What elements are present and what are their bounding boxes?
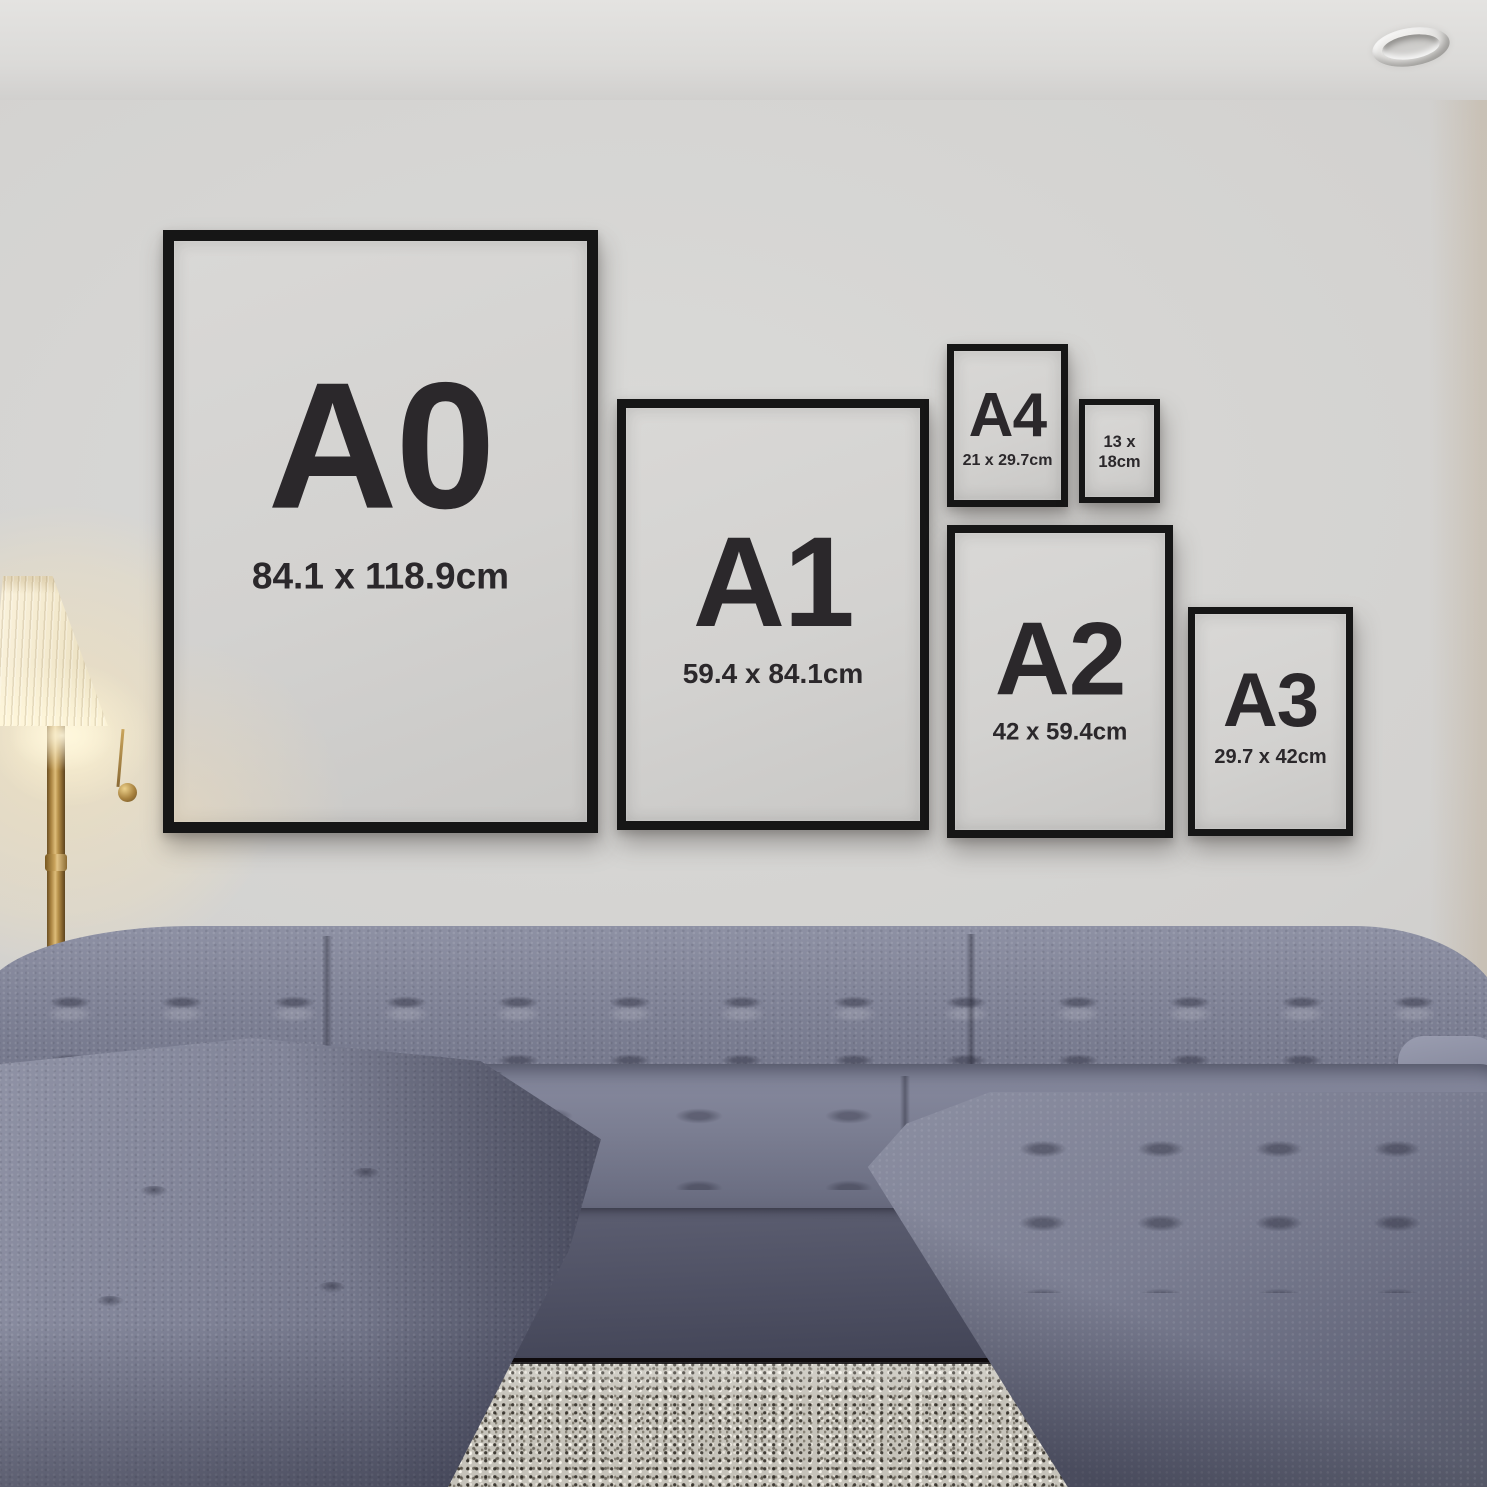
- size-dimensions-13x18: 13 x 18cm: [1085, 432, 1154, 472]
- frame-a4: A4 21 x 29.7cm: [947, 344, 1068, 507]
- living-room-scene: A0 84.1 x 118.9cm A1 59.4 x 84.1cm A4 21…: [0, 0, 1487, 1487]
- frame-13x18: 13 x 18cm: [1079, 399, 1160, 503]
- size-block-a1: A1 59.4 x 84.1cm: [626, 522, 920, 690]
- frame-a1: A1 59.4 x 84.1cm: [617, 399, 929, 830]
- size-dimensions-a1: 59.4 x 84.1cm: [626, 658, 920, 690]
- frame-a2: A2 42 x 59.4cm: [947, 525, 1173, 838]
- size-block-a2: A2 42 x 59.4cm: [955, 610, 1165, 747]
- size-block-13x18: 13 x 18cm: [1085, 432, 1154, 472]
- size-label-a2: A2: [955, 610, 1165, 710]
- size-block-a0: A0 84.1 x 118.9cm: [174, 361, 587, 598]
- size-dimensions-a4: 21 x 29.7cm: [954, 452, 1061, 470]
- size-dimensions-13x18-line1: 13 x: [1085, 432, 1154, 452]
- poster-13x18: 13 x 18cm: [1085, 405, 1154, 497]
- size-label-a4: A4: [954, 387, 1061, 447]
- poster-a4: A4 21 x 29.7cm: [954, 351, 1061, 500]
- recessed-ceiling-light: [1370, 22, 1453, 72]
- size-dimensions-a3: 29.7 x 42cm: [1195, 746, 1346, 769]
- tuft-dimple: [96, 1296, 124, 1307]
- poster-a0: A0 84.1 x 118.9cm: [174, 241, 587, 822]
- size-dimensions-13x18-line2: 18cm: [1085, 452, 1154, 472]
- ceiling: [0, 0, 1487, 100]
- poster-a3: A3 29.7 x 42cm: [1195, 614, 1346, 829]
- poster-a1: A1 59.4 x 84.1cm: [626, 408, 920, 821]
- size-label-a3: A3: [1195, 665, 1346, 738]
- frame-a3: A3 29.7 x 42cm: [1188, 607, 1353, 836]
- size-block-a3: A3 29.7 x 42cm: [1195, 665, 1346, 769]
- wall-corner-shading: [1429, 100, 1487, 1060]
- poster-a2: A2 42 x 59.4cm: [955, 533, 1165, 830]
- size-label-a0: A0: [174, 361, 587, 534]
- size-label-a1: A1: [626, 522, 920, 645]
- frame-a0: A0 84.1 x 118.9cm: [163, 230, 598, 833]
- lamp-pull-ball: [118, 783, 137, 802]
- size-block-a4: A4 21 x 29.7cm: [954, 387, 1061, 471]
- recessed-light-inner: [1380, 31, 1441, 64]
- tuft-dimple: [352, 1168, 380, 1179]
- size-dimensions-a0: 84.1 x 118.9cm: [174, 556, 587, 598]
- tuft-dimple: [140, 1186, 168, 1197]
- lamp-pole-collar: [45, 854, 67, 871]
- tuft-dimple: [318, 1282, 346, 1293]
- size-dimensions-a2: 42 x 59.4cm: [955, 719, 1165, 747]
